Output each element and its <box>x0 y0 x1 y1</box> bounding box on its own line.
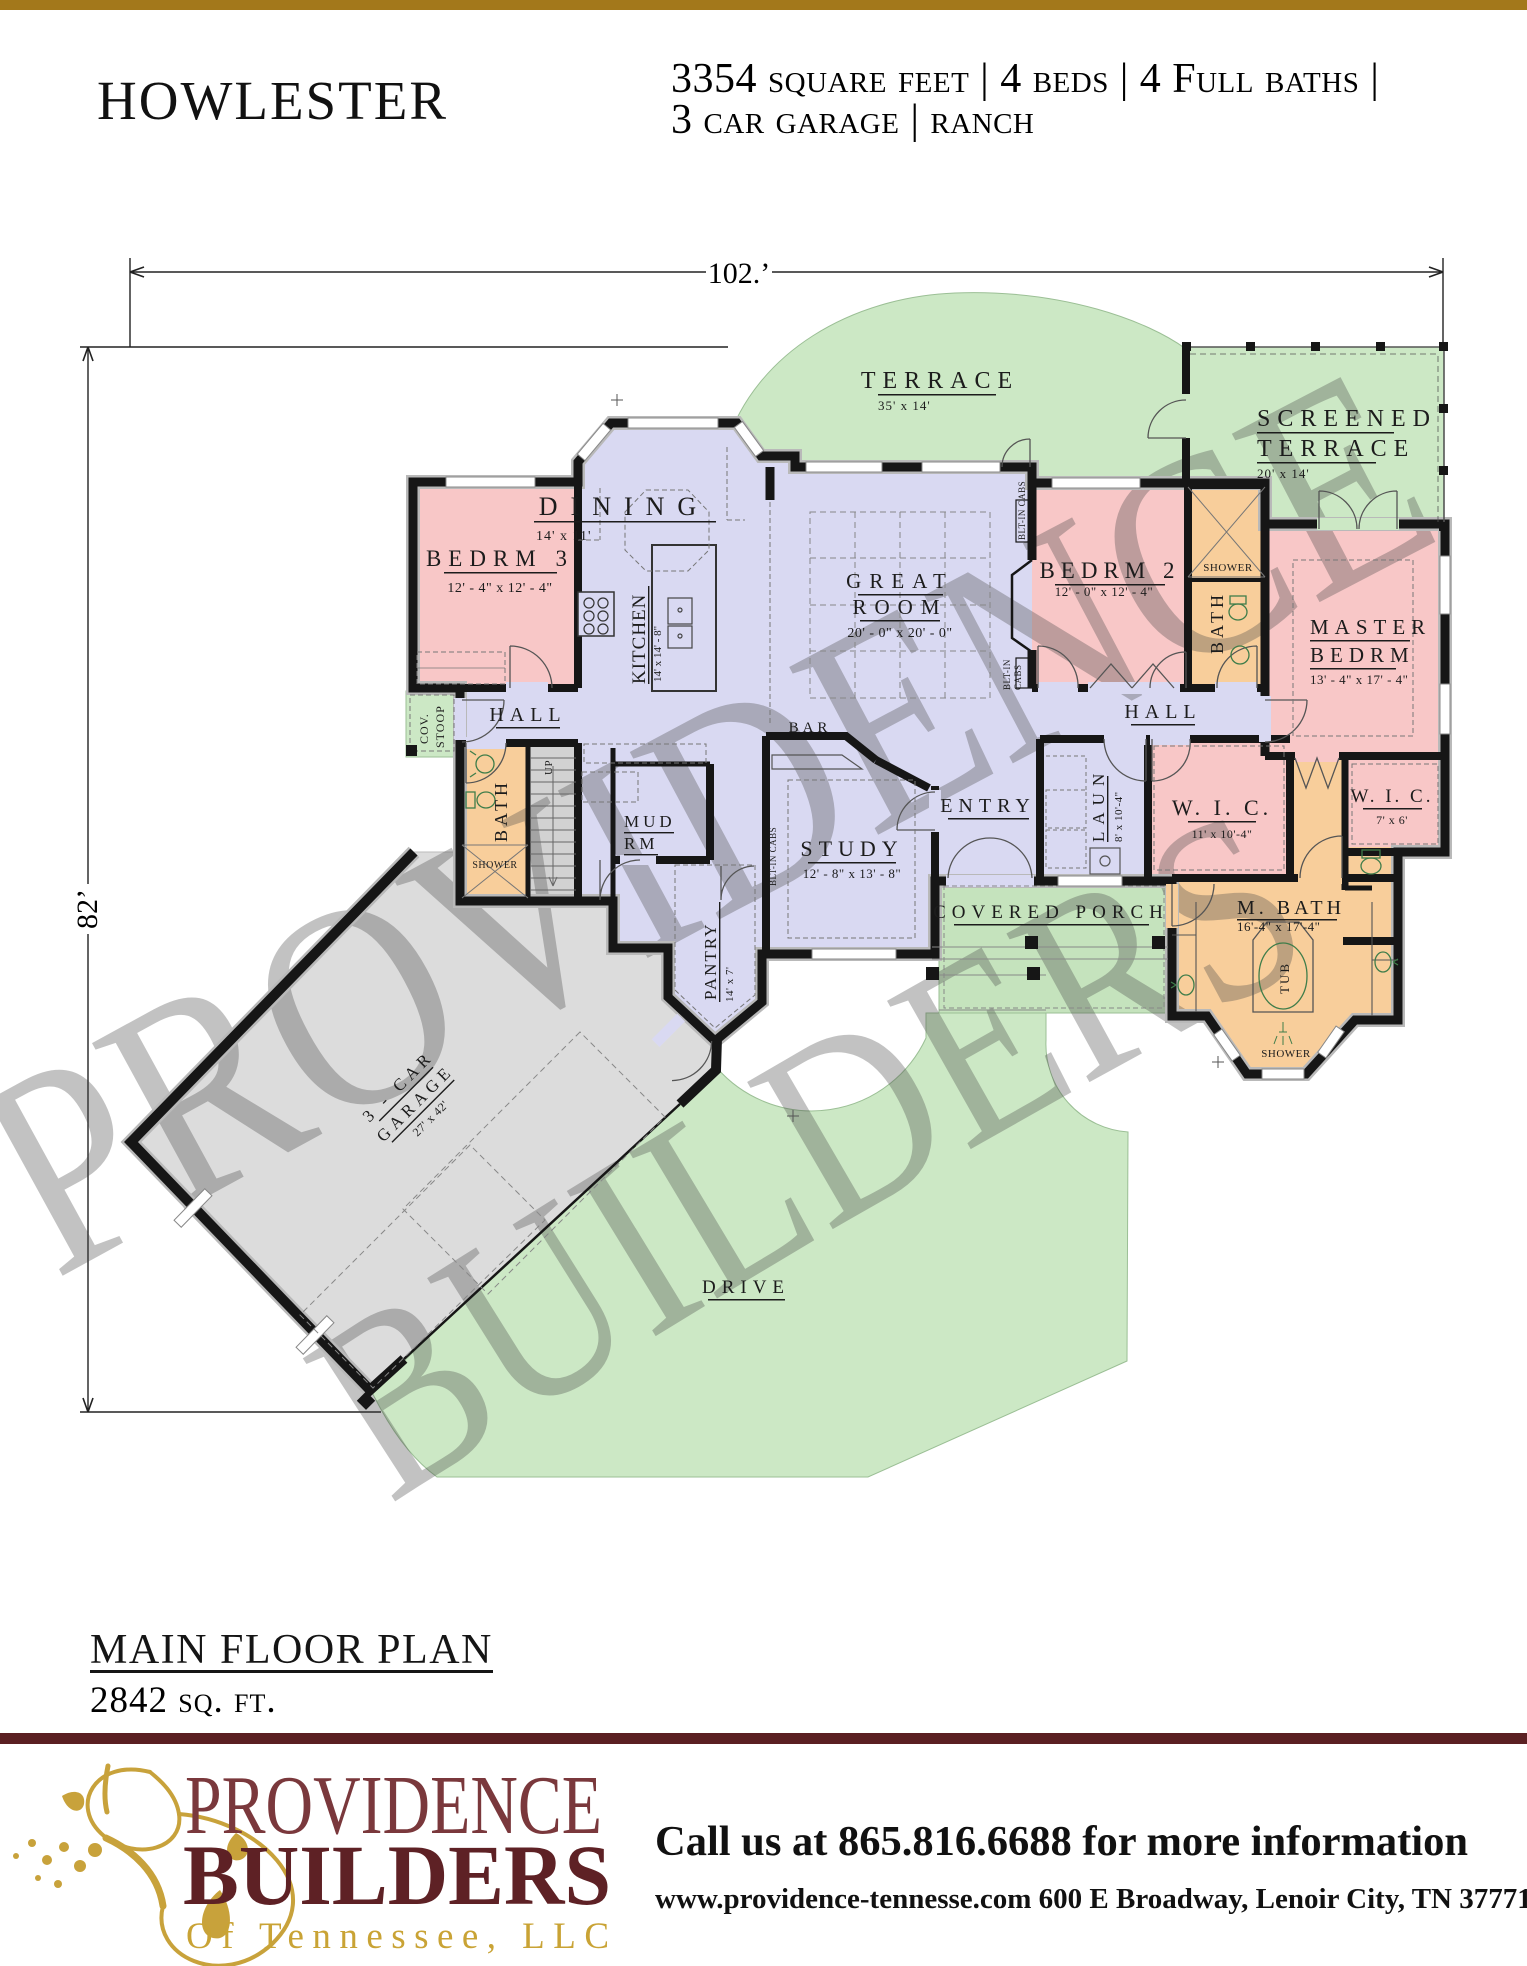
svg-text:COVERED PORCH: COVERED PORCH <box>933 902 1169 923</box>
svg-text:BATH: BATH <box>491 779 511 842</box>
svg-text:HOWLESTER: HOWLESTER <box>97 70 448 131</box>
svg-text:82’: 82’ <box>71 889 104 929</box>
svg-text:STOOP: STOOP <box>433 705 447 748</box>
svg-text:20' x 14': 20' x 14' <box>1257 466 1310 481</box>
svg-text:MAIN FLOOR PLAN: MAIN FLOOR PLAN <box>90 1627 493 1673</box>
svg-text:13' - 4" x 17' - 4": 13' - 4" x 17' - 4" <box>1310 672 1408 687</box>
svg-text:MASTER: MASTER <box>1310 615 1431 639</box>
svg-text:2842 sq. ft.: 2842 sq. ft. <box>90 1680 277 1721</box>
svg-text:BEDRM: BEDRM <box>1310 643 1415 667</box>
svg-text:DINING: DINING <box>539 492 709 521</box>
svg-text:CABS: CABS <box>1013 664 1023 690</box>
svg-text:UP: UP <box>543 760 555 775</box>
svg-text:TERRACE: TERRACE <box>861 368 1019 394</box>
svg-text:14' x 14' - 8": 14' x 14' - 8" <box>652 626 664 682</box>
svg-text:DRIVE: DRIVE <box>702 1277 790 1298</box>
svg-text:BEDRM 2: BEDRM 2 <box>1039 558 1180 583</box>
svg-text:3 car garage | ranch: 3 car garage | ranch <box>671 97 1034 143</box>
svg-text:MUD: MUD <box>624 812 676 831</box>
svg-text:7' x 6': 7' x 6' <box>1376 813 1408 827</box>
svg-text:COV.: COV. <box>417 713 431 744</box>
svg-text:BLT-IN CABS: BLT-IN CABS <box>1017 481 1027 540</box>
svg-text:HALL: HALL <box>1124 701 1201 723</box>
svg-text:KITCHEN: KITCHEN <box>629 594 650 684</box>
svg-text:HALL: HALL <box>489 704 566 726</box>
svg-text:STUDY: STUDY <box>800 836 903 861</box>
svg-text:SHOWER: SHOWER <box>1203 562 1253 574</box>
svg-text:ENTRY: ENTRY <box>940 795 1036 817</box>
svg-text:BATH: BATH <box>1207 591 1227 654</box>
svg-text:SHOWER: SHOWER <box>472 860 517 871</box>
svg-text:RM: RM <box>624 834 658 853</box>
svg-text:16'-4" x 17'-4": 16'-4" x 17'-4" <box>1237 919 1320 934</box>
svg-text:12' - 4" x 12' - 4": 12' - 4" x 12' - 4" <box>447 581 552 596</box>
svg-text:GREAT: GREAT <box>846 569 954 593</box>
svg-text:12' - 0" x 12' - 4": 12' - 0" x 12' - 4" <box>1055 584 1153 599</box>
svg-text:20' - 0" x 20' - 0": 20' - 0" x 20' - 0" <box>847 626 952 641</box>
svg-text:M. BATH: M. BATH <box>1237 897 1345 919</box>
svg-text:PANTRY: PANTRY <box>701 922 720 1000</box>
svg-text:W. I. C.: W. I. C. <box>1172 795 1272 820</box>
svg-text:TERRACE: TERRACE <box>1257 436 1415 462</box>
svg-text:www.providence-tennesse.com 60: www.providence-tennesse.com 600 E Broadw… <box>655 1883 1527 1915</box>
svg-text:W. I. C.: W. I. C. <box>1351 786 1434 807</box>
svg-text:14' x 11': 14' x 11' <box>536 529 592 544</box>
svg-text:LAUN: LAUN <box>1089 767 1108 842</box>
svg-text:ROOM: ROOM <box>852 595 947 619</box>
svg-text:BEDRM 3: BEDRM 3 <box>426 546 574 571</box>
svg-text:102.’: 102.’ <box>708 257 771 290</box>
svg-text:12' - 8" x 13' - 8": 12' - 8" x 13' - 8" <box>803 866 901 881</box>
svg-text:35' x 14': 35' x 14' <box>878 398 931 413</box>
svg-text:BLT-IN: BLT-IN <box>1002 659 1012 690</box>
svg-text:Call us at 865.816.6688 for mo: Call us at 865.816.6688 for more informa… <box>655 1818 1468 1865</box>
svg-text:8' x 10'-4": 8' x 10'-4" <box>1113 791 1125 842</box>
svg-text:3354 square feet | 4 beds | 4: 3354 square feet | 4 beds | 4 Full baths… <box>671 56 1379 102</box>
svg-text:14' x 7': 14' x 7' <box>724 967 736 1002</box>
svg-text:11' x 10'-4": 11' x 10'-4" <box>1192 827 1253 841</box>
svg-text:TUB: TUB <box>1277 962 1292 994</box>
svg-text:BUILDERS: BUILDERS <box>183 1827 611 1923</box>
svg-text:SHOWER: SHOWER <box>1261 1048 1311 1060</box>
svg-text:BLT-IN CABS: BLT-IN CABS <box>768 827 778 886</box>
svg-text:SCREENED: SCREENED <box>1257 406 1437 432</box>
svg-text:BAR: BAR <box>789 720 832 736</box>
